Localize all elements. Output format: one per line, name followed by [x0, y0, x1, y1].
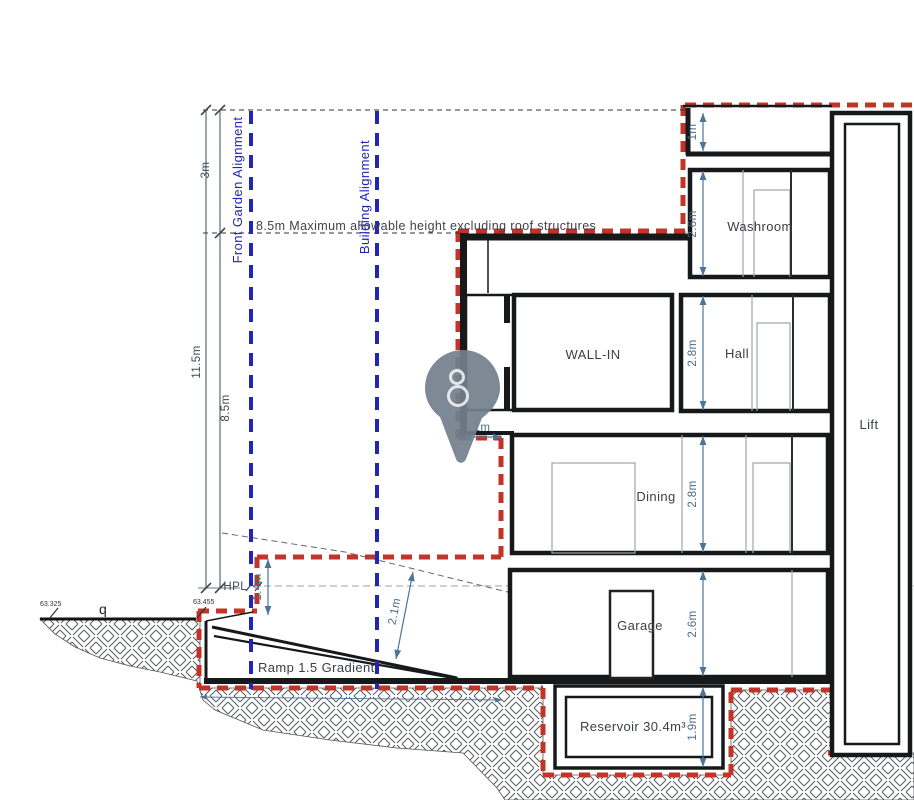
dim-max-height: 8.5m [220, 394, 232, 421]
room-label-reservoir: Reservoir 30.4m³ [580, 719, 686, 734]
ramp-label: Ramp 1.5 Gradient [258, 660, 375, 675]
room-label-lift: Lift [860, 417, 879, 432]
dim-washroom: 2.6m [687, 210, 699, 237]
dim-hall: 2.8m [687, 339, 699, 366]
room-label-wall-in: WALL-IN [565, 347, 620, 362]
dim-reservoir: 1.9m [687, 713, 699, 740]
survey-q-label: q [99, 601, 107, 617]
dim-ramp-clearance: 2.1m [387, 597, 404, 626]
dim-total-height: 11.5m [191, 345, 203, 378]
pin-icon[interactable] [425, 350, 500, 463]
dim-front-depth: 1.4m [252, 573, 264, 600]
dim-garage: 2.6m [687, 610, 699, 637]
front-garden-alignment-label: Front Garden Alignment [230, 117, 245, 264]
spot-level-left: 63.325 [40, 601, 62, 608]
room-label-dining: Dining [636, 489, 675, 504]
building-section-svg: Front Garden Alignment Building Alignmen… [0, 0, 914, 800]
dim-parapet: 1m [687, 124, 699, 141]
garage-door [610, 591, 653, 678]
max-height-note: 8.5m Maximum allowable height excluding … [256, 219, 596, 233]
spot-level-right: 63.455 [193, 599, 215, 606]
dim-dining: 2.8m [687, 480, 699, 507]
hpl-label: HPL [223, 581, 247, 593]
room-garage [510, 570, 828, 677]
lift-shaft-inner [845, 124, 899, 744]
room-label-garage: Garage [617, 618, 663, 633]
dim-setback-top: 3m [200, 162, 212, 179]
building-alignment-label: Building Alignment [357, 140, 372, 254]
room-label-hall: Hall [725, 346, 749, 361]
location-pin[interactable] [425, 350, 500, 463]
room-label-washroom: Washroom [727, 219, 793, 234]
section-drawing-sheet: Front Garden Alignment Building Alignmen… [0, 0, 914, 800]
